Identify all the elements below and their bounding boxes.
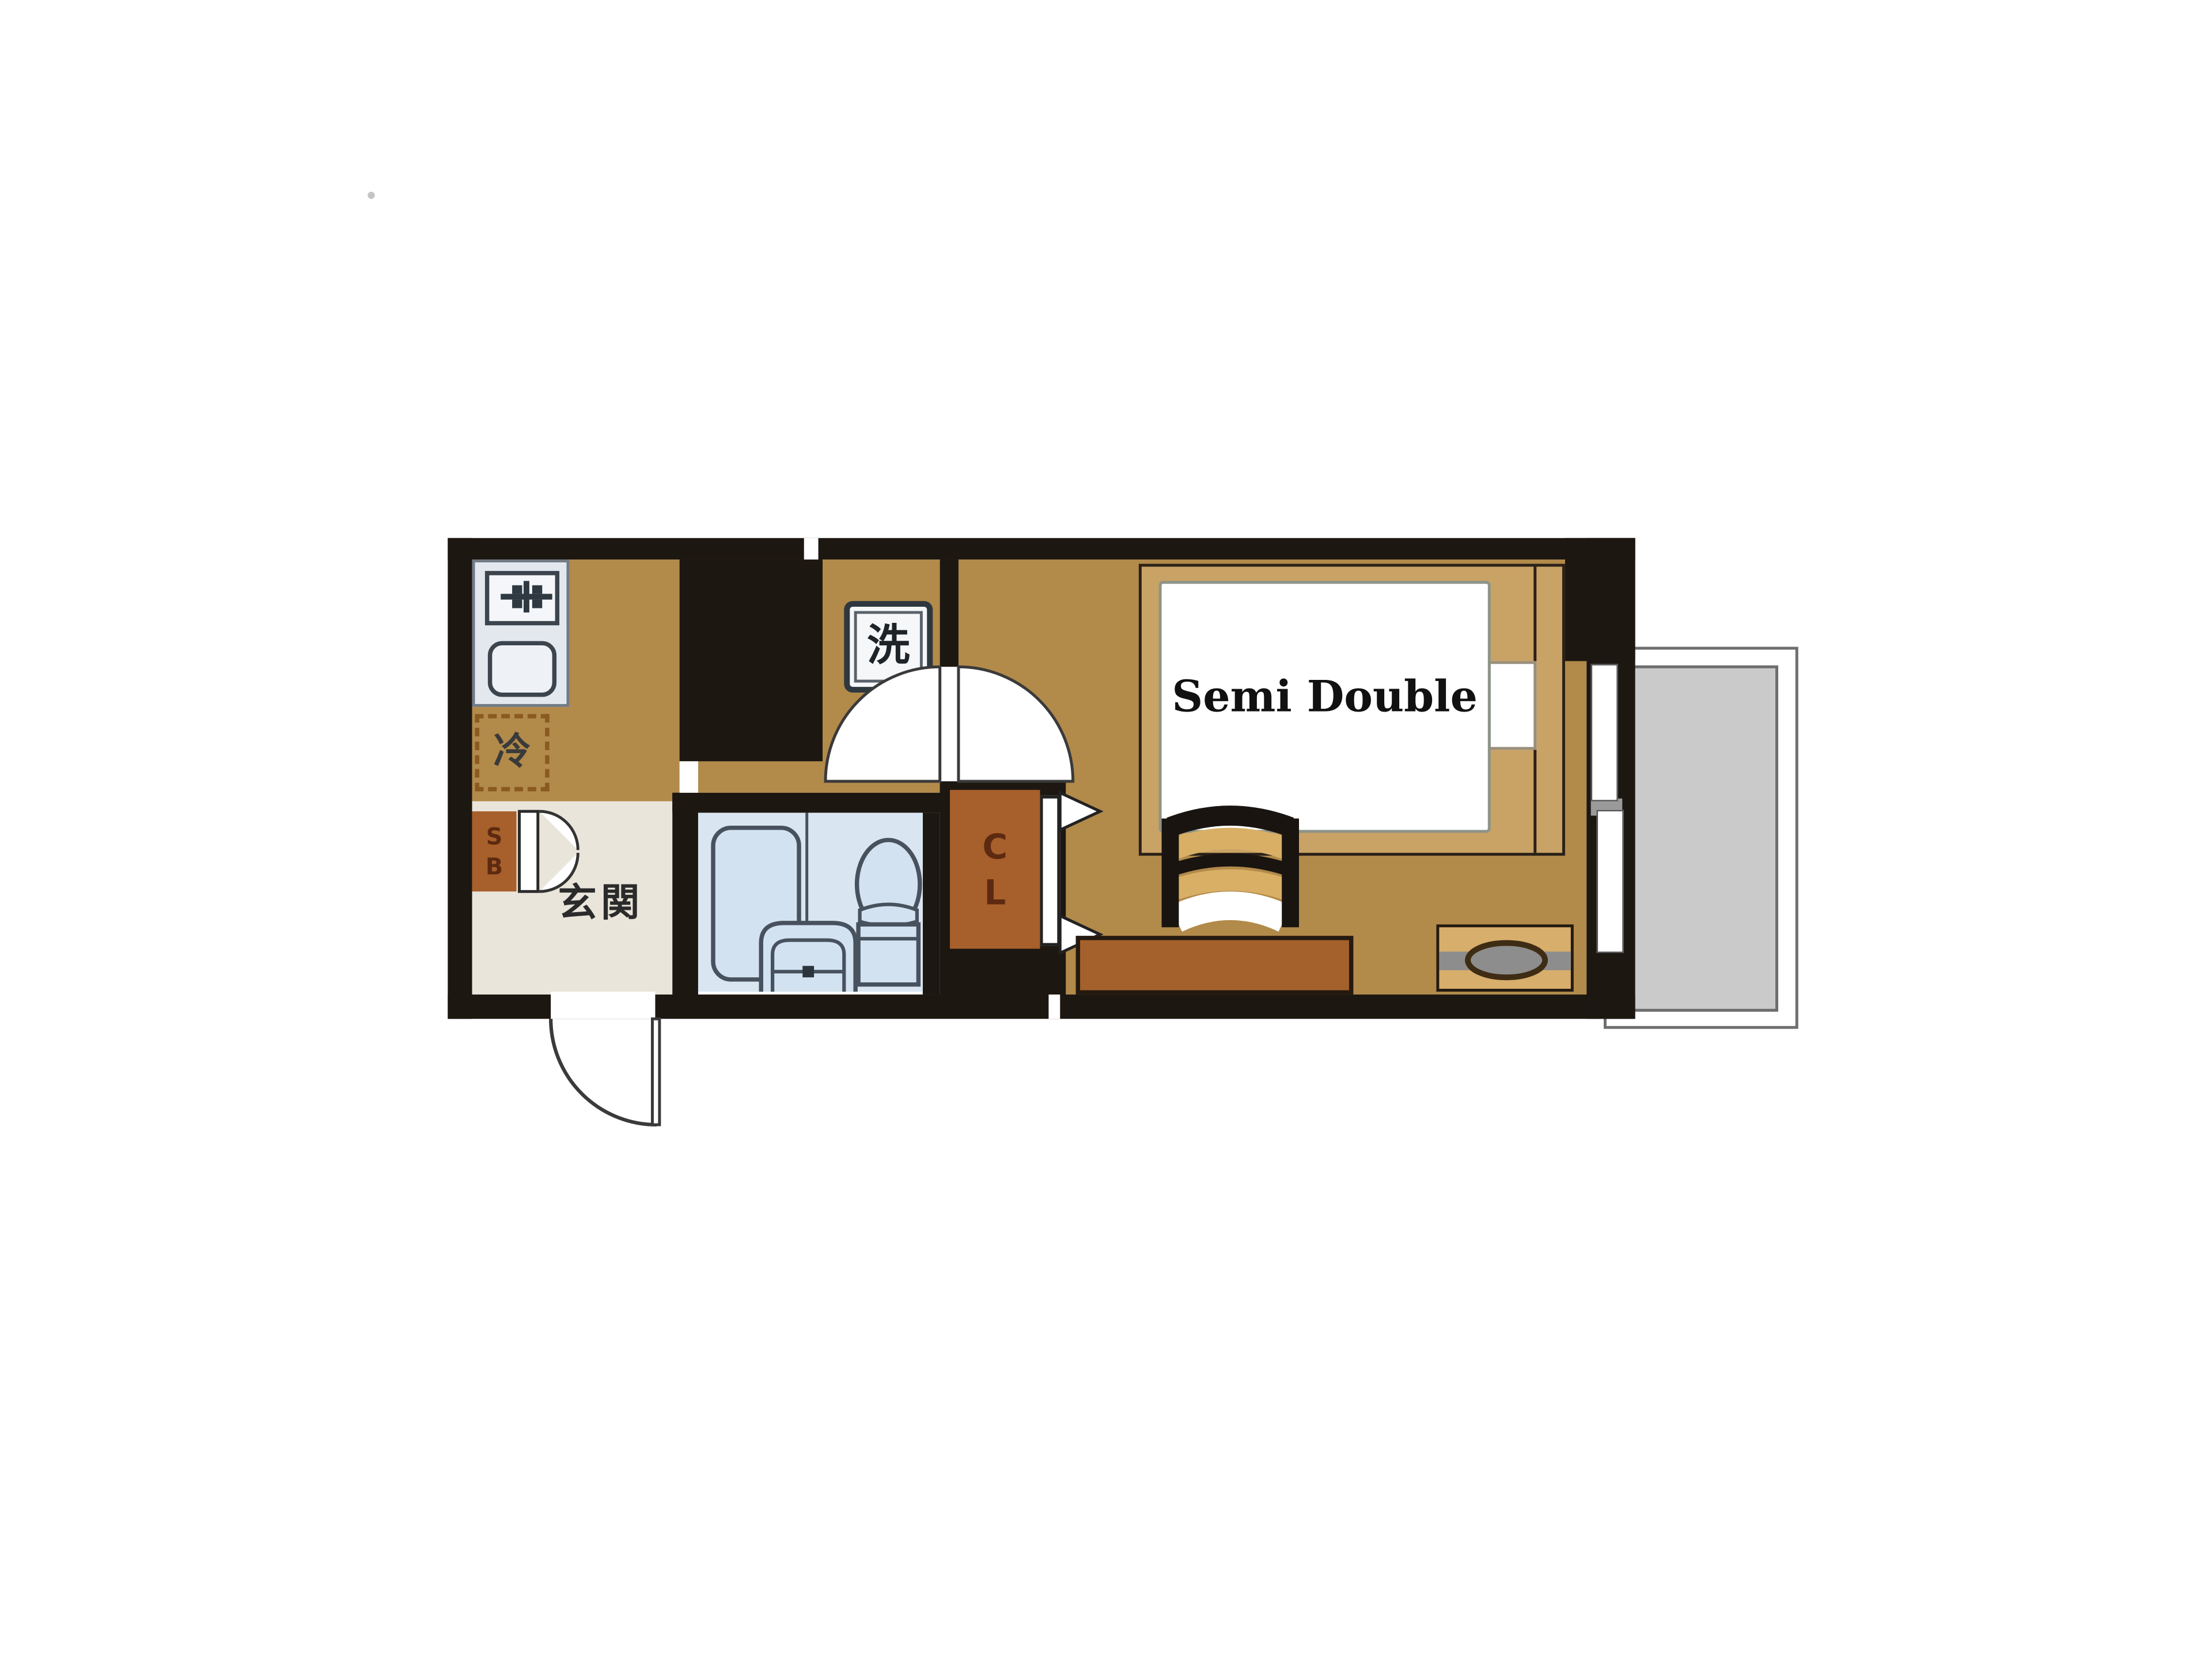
stove-burner-icon [498,578,555,615]
refrigerator-label: 冷 [494,734,531,772]
window-pane-top [1591,664,1618,801]
vanity-sink [755,917,861,995]
wall-top [448,538,1635,559]
shoe-box: S B [472,811,517,891]
genkan-label: 玄関 [527,884,675,923]
desk-chair [1159,799,1302,947]
stove [485,571,559,625]
tv-board [1436,924,1573,992]
hall-room-door-icon [825,664,1074,784]
artifact-dot [368,192,374,199]
bed-pillow [1488,661,1536,750]
bed-size-label: Semi Double [1162,672,1488,723]
wall-seam-bottom [1048,995,1060,1019]
shoe-box-letter-b: B [486,853,503,880]
wall-partition-top [940,559,959,667]
wall-hall-bath [672,793,959,813]
kitchen-sink [488,641,556,697]
refrigerator-space: 冷 [475,714,550,791]
wall-genkan-bath [672,793,698,997]
toilet [853,835,924,990]
floor-plan-page: 冷 S B 玄関 洗 C L [0,0,2211,1660]
threshold-kitchen-hall [680,761,698,793]
shoe-box-door-leaf [518,810,539,893]
wall-bath-right [923,813,940,995]
closet: C L [950,790,1040,949]
wall-top-right-mass [1565,538,1635,661]
bath-divider [805,813,808,923]
desk [1076,936,1354,995]
entrance-door-icon [548,995,662,1137]
balcony-floor [1622,665,1778,1012]
closet-letter-c: C [982,826,1007,867]
closet-door-triangles-icon [1040,790,1106,959]
window-pane-bottom [1597,810,1624,953]
closet-letter-l: L [984,872,1006,913]
wall-left [448,538,472,1019]
wall-kitchen-hall-chunk [680,559,823,761]
shoe-box-letter-s: S [486,823,503,850]
wall-seam-top [804,538,819,559]
washer-label: 洗 [867,625,910,668]
tv-board-handle [1464,939,1550,982]
